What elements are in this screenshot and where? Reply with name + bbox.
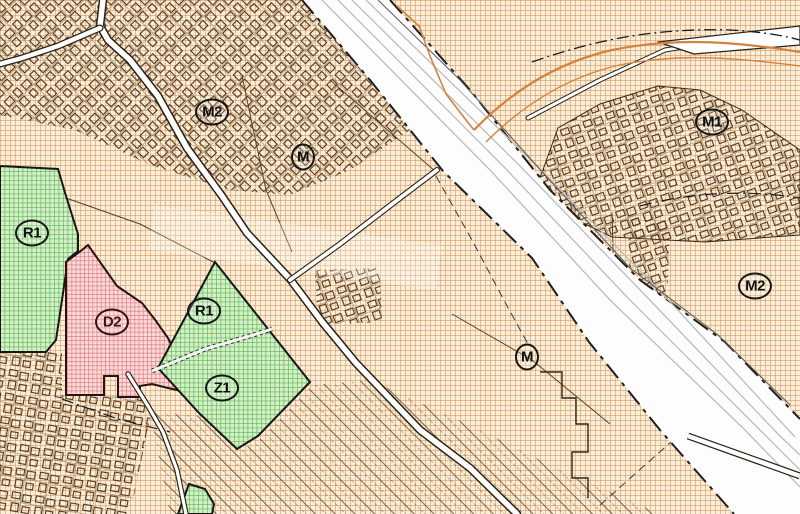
zone-badge-d2: D2	[95, 309, 129, 336]
zone-badge-m2-nw: M2	[195, 99, 229, 126]
zone-label: R1	[23, 225, 41, 242]
zone-badge-m2-east: M2	[738, 273, 772, 300]
zone-label: D2	[103, 314, 121, 331]
zone-label: Z1	[214, 380, 231, 397]
zone-label: M2	[202, 104, 222, 121]
zone-badge-r1-west: R1	[15, 220, 49, 247]
zoning-map[interactable]: M2 M R1 D2 R1 Z1 M M1 M2	[0, 0, 800, 514]
zone-badge-r1-central: R1	[187, 298, 221, 325]
zone-label: M2	[745, 278, 765, 295]
map-canvas	[0, 0, 800, 514]
zone-label: M1	[702, 114, 722, 131]
zone-label: M	[521, 349, 533, 366]
zone-badge-m-southeast: M	[515, 344, 539, 371]
zone-badge-z1: Z1	[205, 375, 239, 402]
zone-label: M	[297, 149, 309, 166]
zone-badge-m-north: M	[291, 144, 315, 171]
zone-badge-m1: M1	[695, 109, 729, 136]
zone-label: R1	[195, 303, 213, 320]
